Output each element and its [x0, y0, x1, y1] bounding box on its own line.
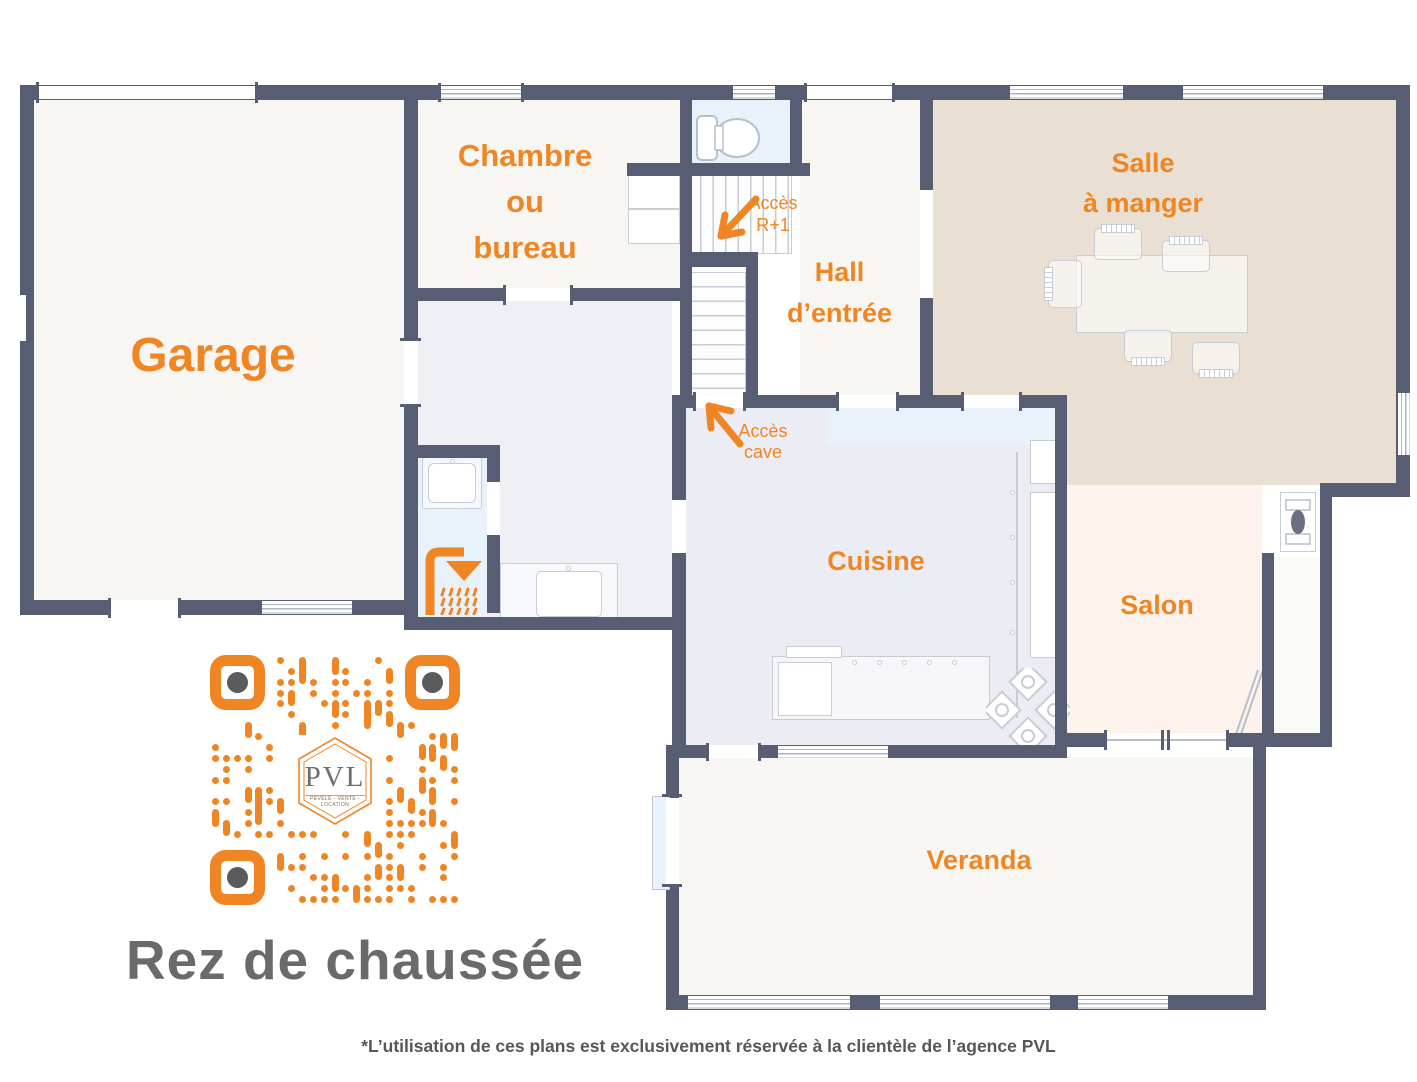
tick [108, 598, 111, 618]
wall-notch [20, 295, 26, 341]
tick [400, 338, 421, 341]
door-leaf [1226, 666, 1264, 742]
wall [680, 85, 692, 400]
wall [1253, 745, 1266, 1010]
window [262, 601, 352, 614]
chair-back [1044, 267, 1053, 301]
oven [778, 662, 832, 716]
wall [1320, 483, 1332, 747]
tick [804, 83, 807, 102]
qr-finder [210, 850, 265, 905]
tick [662, 794, 682, 797]
bathroom-sink-basin [428, 463, 476, 503]
qr-finder-dot [227, 867, 248, 888]
side-strip [1274, 557, 1320, 735]
window [1183, 86, 1323, 99]
tick [1226, 730, 1229, 750]
door-opening [404, 340, 418, 406]
tick [693, 392, 696, 411]
wall [680, 252, 758, 267]
floor-plan: Garage Chambre ou bureau Hall d’entrée S… [0, 0, 1417, 1082]
tick [758, 743, 761, 761]
room-veranda [679, 757, 1254, 996]
label-living: Salon [1104, 590, 1210, 621]
label-dining: Salle à manger [1058, 143, 1228, 223]
window [1398, 393, 1410, 455]
chair-back [1199, 369, 1233, 378]
door-opening [838, 395, 898, 408]
chair-back [1101, 224, 1135, 233]
tick [662, 884, 682, 887]
tick [836, 392, 839, 411]
page-title: Rez de chaussée [55, 928, 655, 992]
faucet [566, 566, 571, 571]
door-opening [487, 482, 500, 535]
room-hall [800, 95, 922, 398]
tall-cabinet [1030, 492, 1056, 658]
chair-back [1169, 236, 1203, 245]
disclaimer: *L’utilisation de ces plans est exclusiv… [0, 1036, 1417, 1057]
tick [896, 392, 899, 411]
wall [1262, 553, 1274, 747]
door-opening [110, 600, 180, 615]
knob [877, 660, 882, 665]
label-veranda: Veranda [913, 845, 1045, 876]
door-opening [963, 395, 1021, 408]
door-opening [506, 288, 572, 301]
window [1010, 86, 1123, 99]
knob [1010, 580, 1015, 585]
tick [36, 82, 39, 103]
pvl-tagline: PÉVÈLE - VENTE - LOCATION [305, 795, 365, 808]
tick [400, 404, 421, 407]
window-plain [806, 86, 894, 99]
qr-code: PVL PÉVÈLE - VENTE - LOCATION [210, 655, 460, 905]
fridge [1030, 440, 1056, 484]
knob [902, 660, 907, 665]
tick [438, 83, 441, 102]
chair [1162, 240, 1210, 272]
arrow-to-stairs-up [712, 192, 764, 244]
tick [1161, 730, 1164, 750]
wall [20, 600, 418, 615]
window-opening [666, 798, 679, 886]
tick [1104, 730, 1107, 750]
shower-icon [420, 545, 484, 615]
tick [961, 392, 964, 411]
closet-shelf [629, 208, 679, 210]
room-dining [1062, 397, 1398, 485]
wall [404, 445, 500, 458]
pvl-logo-text: PVL [295, 761, 375, 794]
knob [1010, 535, 1015, 540]
wall [672, 395, 686, 757]
wall [1055, 395, 1067, 745]
qr-finder-dot [422, 672, 443, 693]
toilet-icon [694, 110, 764, 168]
tick [521, 83, 524, 102]
label-hall: Hall d’entrée [782, 252, 897, 334]
door-opening [672, 500, 686, 553]
window [880, 996, 1050, 1009]
fireplace-icon [1284, 498, 1312, 546]
tick [503, 285, 506, 305]
label-bedroom-office: Chambre ou bureau [430, 133, 620, 271]
chair [1048, 260, 1082, 308]
knob [852, 660, 857, 665]
window [1078, 996, 1168, 1009]
wall [20, 85, 34, 615]
window [778, 746, 888, 758]
qr-finder [210, 655, 265, 710]
chair [1124, 330, 1172, 362]
tick [1167, 730, 1170, 750]
tick [570, 285, 573, 305]
wall [790, 85, 802, 175]
wall [1320, 483, 1410, 497]
door-opening [920, 190, 933, 298]
knob [952, 660, 957, 665]
chair [1094, 228, 1142, 260]
knob [927, 660, 932, 665]
knob [1010, 630, 1015, 635]
tick [178, 598, 181, 618]
tick [706, 743, 709, 761]
tick [255, 82, 258, 103]
wall [627, 163, 810, 176]
wall [404, 617, 686, 630]
window [440, 86, 522, 99]
arrow-to-cellar [700, 398, 752, 450]
door-opening [708, 745, 760, 758]
cooktop [786, 646, 842, 658]
window [733, 86, 775, 99]
knob [1010, 490, 1015, 495]
faucet [450, 459, 455, 464]
chair-back [1131, 357, 1165, 366]
tick [892, 83, 895, 102]
chair [1192, 342, 1240, 374]
wall [746, 267, 758, 398]
window [688, 996, 850, 1009]
qr-logo: PVL PÉVÈLE - VENTE - LOCATION [295, 735, 375, 827]
label-garage: Garage [113, 328, 313, 383]
kitchen-window-band [828, 407, 1055, 445]
tick [1019, 392, 1022, 411]
qr-finder [405, 655, 460, 710]
window-plain [38, 86, 258, 99]
utility-sink [536, 571, 602, 617]
qr-finder-dot [227, 672, 248, 693]
label-kitchen: Cuisine [810, 546, 942, 577]
stairs-down [688, 272, 746, 396]
